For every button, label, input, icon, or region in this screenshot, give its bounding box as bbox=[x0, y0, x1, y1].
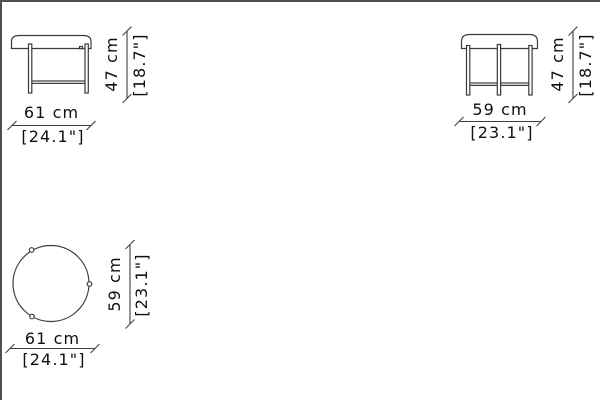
rear-leg-cap bbox=[80, 47, 83, 49]
dimension-lines bbox=[6, 27, 578, 354]
leg-dot-right bbox=[87, 282, 92, 287]
leg-dot-bottom-left bbox=[30, 314, 35, 319]
top-width-metric-label: 61 cm bbox=[25, 331, 80, 347]
stool-side-view bbox=[462, 35, 538, 96]
front-width-metric-label: 61 cm bbox=[24, 105, 79, 121]
stool-top-view bbox=[13, 246, 92, 322]
side-width-metric-label: 59 cm bbox=[472, 102, 527, 118]
front-right-leg bbox=[85, 44, 88, 93]
top-depth-metric-label: 59 cm bbox=[107, 256, 123, 311]
sheet-frame bbox=[0, 0, 600, 400]
side-width-imperial-label: [23.1"] bbox=[470, 125, 533, 141]
side-height-metric-label: 47 cm bbox=[550, 36, 566, 91]
top-width-imperial-label: [24.1"] bbox=[22, 352, 85, 368]
front-height-imperial-label: [18.7"] bbox=[132, 33, 148, 96]
side-height-imperial-label: [18.7"] bbox=[578, 33, 594, 96]
dimension-spec-sheet: 61 cm [24.1"] 47 cm [18.7"] 59 cm [23.1"… bbox=[0, 0, 600, 400]
stretcher-bar bbox=[30, 81, 88, 83]
side-center-leg bbox=[497, 45, 500, 96]
front-left-leg bbox=[29, 44, 32, 93]
stool-front-view bbox=[12, 36, 92, 94]
leg-dot-top-left bbox=[29, 248, 34, 253]
side-left-leg bbox=[467, 46, 470, 96]
top-depth-imperial-label: [23.1"] bbox=[134, 253, 150, 316]
front-width-imperial-label: [24.1"] bbox=[21, 129, 84, 145]
spec-drawing bbox=[0, 0, 600, 400]
seat-outline-circle bbox=[13, 246, 89, 322]
front-height-metric-label: 47 cm bbox=[104, 36, 120, 91]
side-right-leg bbox=[529, 46, 532, 96]
